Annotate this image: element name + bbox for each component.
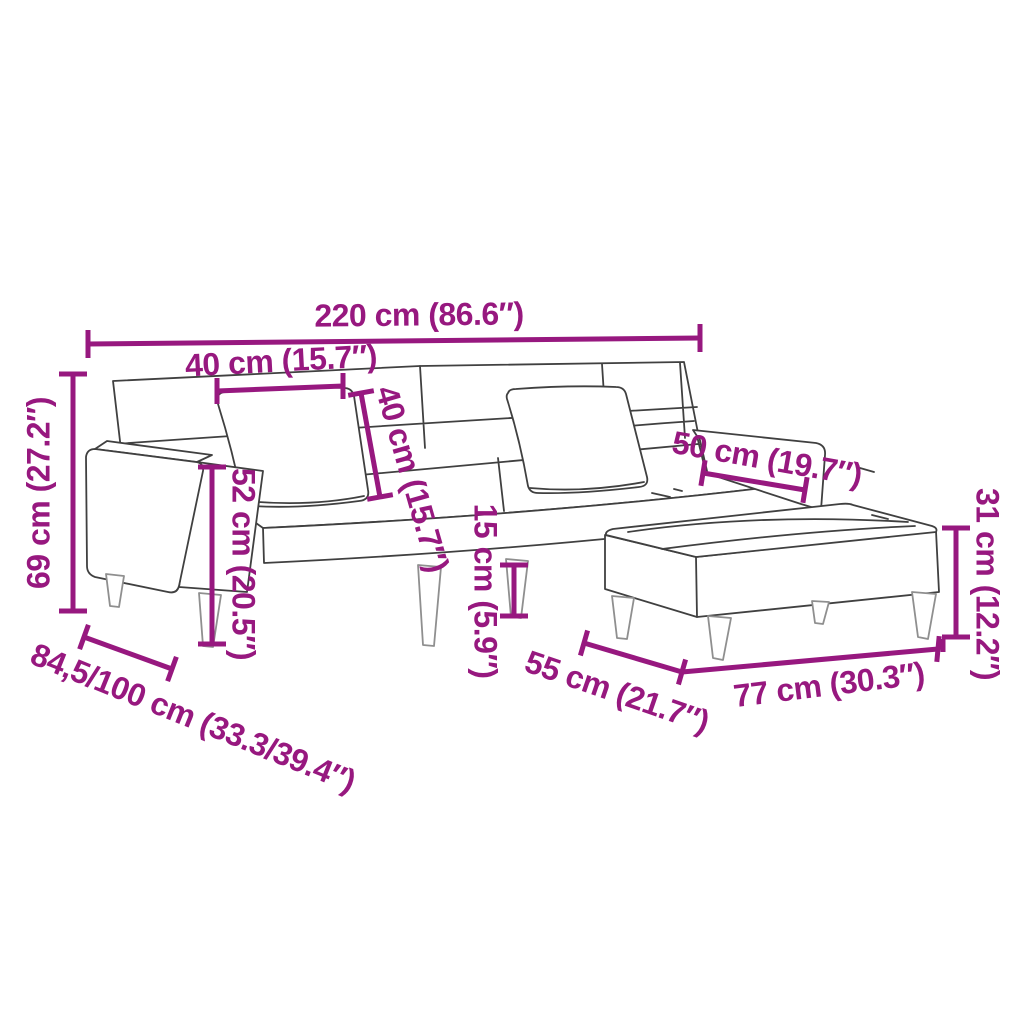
dim-label-seat-back-height: 52 cm (20.5″) bbox=[225, 468, 262, 660]
pillow-right bbox=[507, 386, 648, 493]
dim-label-stool-height: 31 cm (12.2″) bbox=[969, 488, 1006, 680]
dim-label-sofa-height: 69 cm (27.2″) bbox=[21, 397, 58, 589]
footstool-front-seam bbox=[696, 557, 697, 617]
footstool-leg bbox=[912, 592, 936, 639]
dimension-diagram: 220 cm (86.6″) 40 cm (15.7″) 40 cm (15.7… bbox=[0, 0, 1024, 1024]
dim-stool-height-line bbox=[942, 528, 970, 652]
dim-label-leg-height: 15 cm (5.9″) bbox=[467, 504, 504, 679]
sofa-line-art bbox=[0, 0, 1024, 1024]
sofa-leg bbox=[418, 565, 441, 646]
sofa-leg bbox=[106, 574, 124, 607]
sofa-leg bbox=[506, 559, 528, 618]
dim-label-sofa-width: 220 cm (86.6″) bbox=[314, 295, 524, 334]
dim-sofa-height-line bbox=[59, 374, 87, 611]
footstool-leg bbox=[812, 601, 829, 624]
footstool-leg bbox=[612, 596, 634, 639]
footstool-leg bbox=[708, 616, 731, 660]
